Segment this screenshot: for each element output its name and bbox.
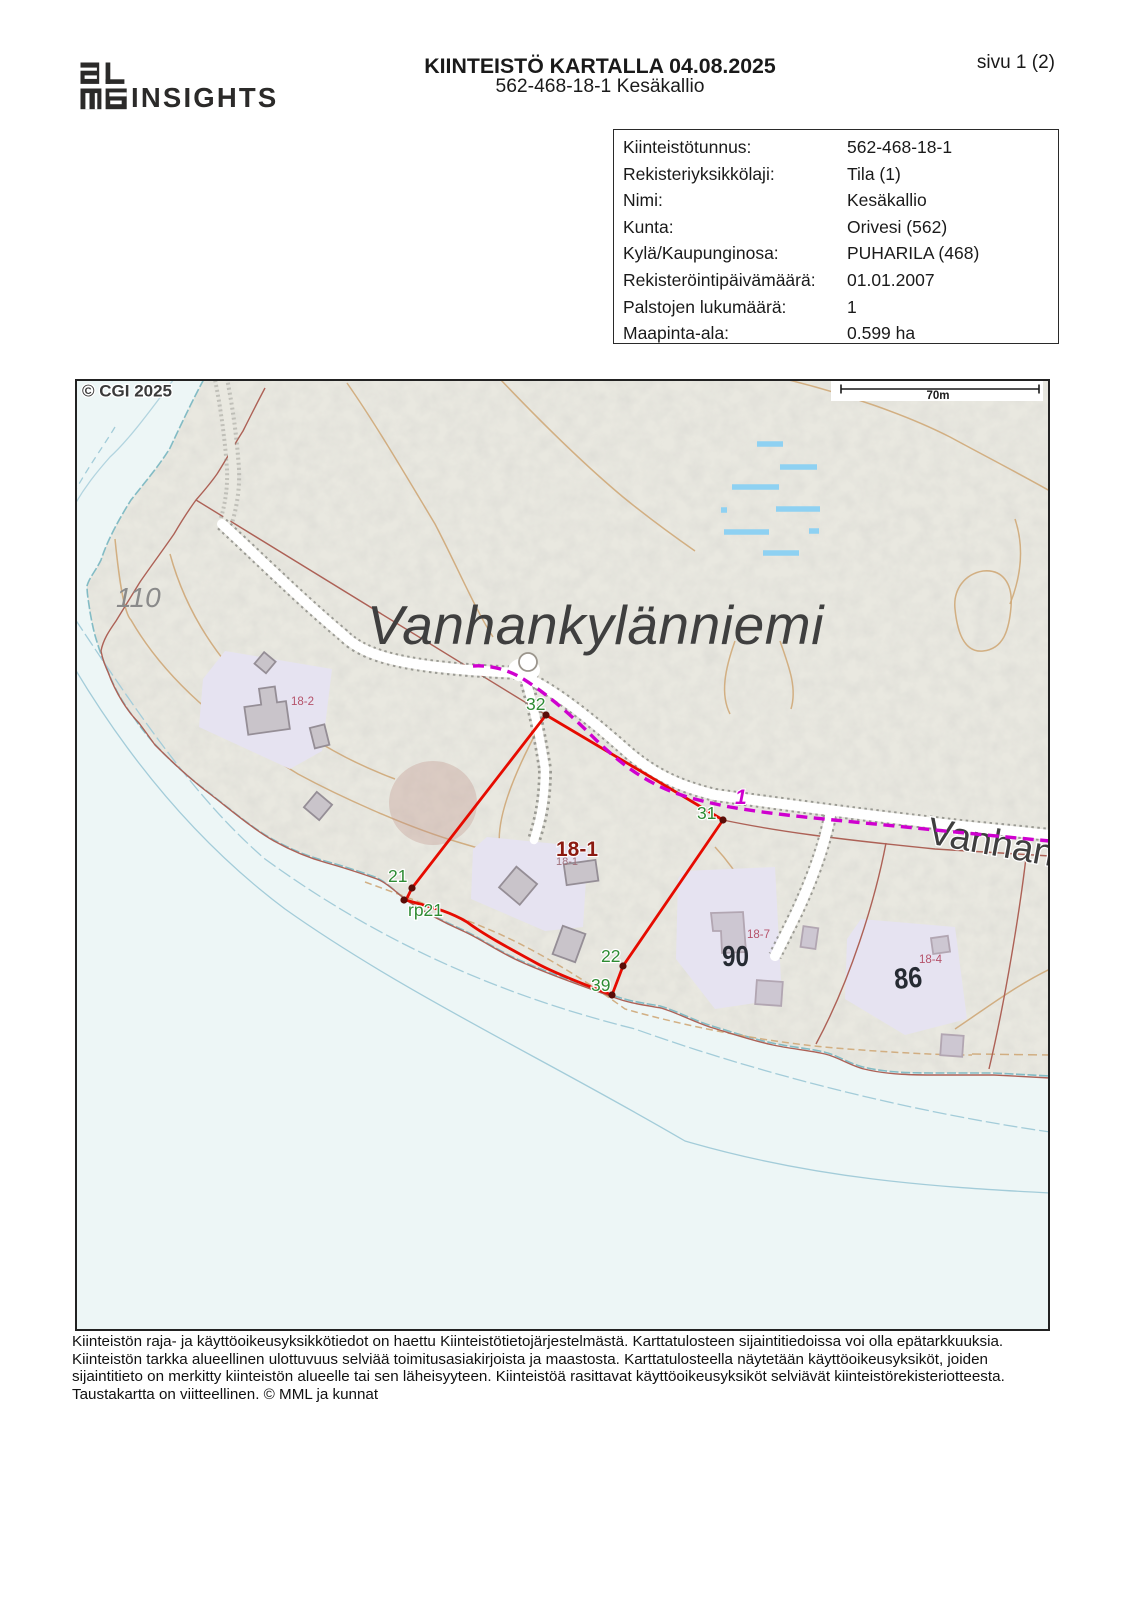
svg-text:21: 21 bbox=[388, 866, 407, 886]
svg-text:31: 31 bbox=[697, 803, 716, 823]
svg-text:22: 22 bbox=[601, 946, 620, 966]
svg-text:INSIGHTS: INSIGHTS bbox=[131, 82, 278, 112]
svg-text:90: 90 bbox=[722, 941, 749, 973]
svg-text:18-7: 18-7 bbox=[747, 929, 770, 941]
svg-text:86: 86 bbox=[893, 962, 924, 996]
svg-text:110: 110 bbox=[116, 582, 161, 613]
svg-text:18-2: 18-2 bbox=[291, 696, 314, 708]
svg-text:32: 32 bbox=[526, 694, 545, 714]
svg-text:© CGI 2025: © CGI 2025 bbox=[82, 382, 172, 401]
svg-text:Vanhankylänniemi: Vanhankylänniemi bbox=[367, 594, 825, 656]
svg-text:18-1: 18-1 bbox=[556, 856, 578, 868]
svg-text:39: 39 bbox=[591, 975, 610, 995]
svg-text:rp21: rp21 bbox=[408, 900, 443, 920]
svg-text:70m: 70m bbox=[926, 390, 949, 402]
svg-text:18-4: 18-4 bbox=[919, 954, 943, 966]
svg-text:1: 1 bbox=[735, 786, 747, 809]
